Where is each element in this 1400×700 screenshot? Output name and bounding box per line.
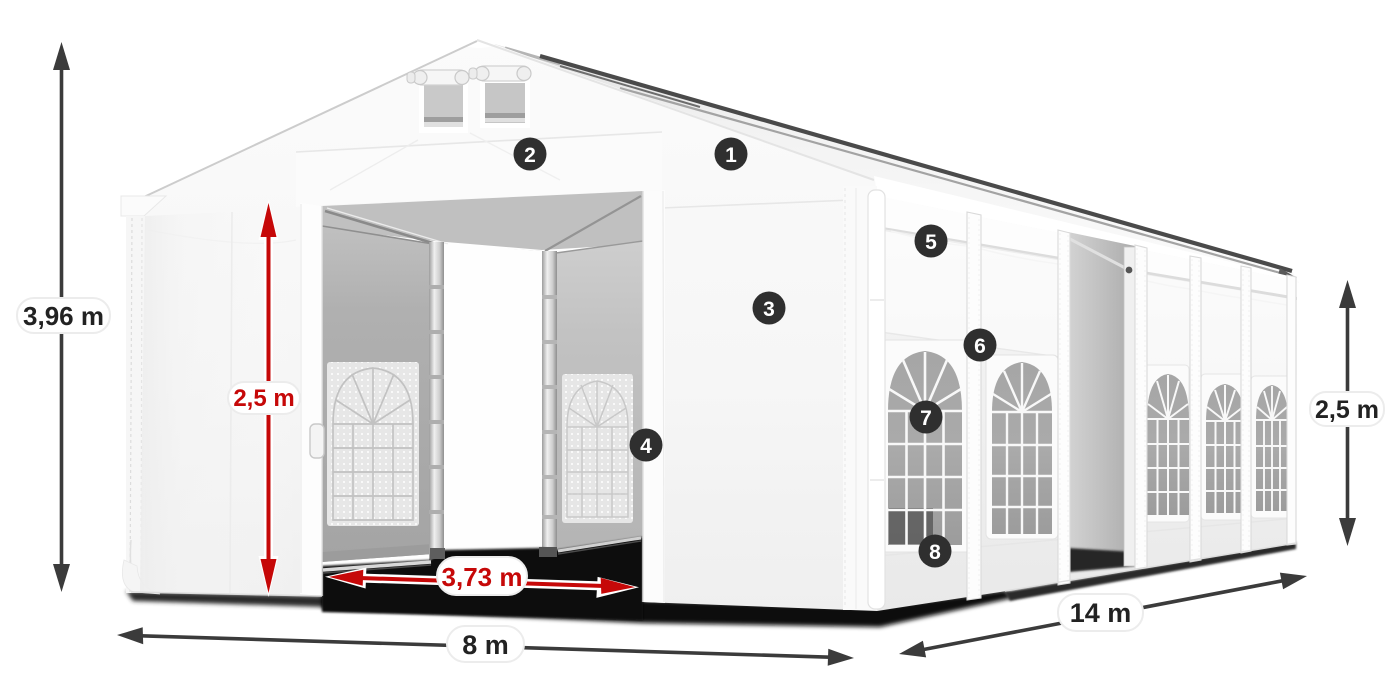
- svg-text:3,73 m: 3,73 m: [442, 562, 523, 592]
- svg-text:7: 7: [920, 407, 932, 430]
- svg-text:2,5 m: 2,5 m: [1315, 396, 1379, 424]
- svg-text:2,5 m: 2,5 m: [233, 385, 294, 412]
- svg-text:8 m: 8 m: [462, 630, 509, 660]
- svg-text:3,96 m: 3,96 m: [23, 301, 104, 331]
- svg-text:6: 6: [974, 335, 986, 358]
- svg-text:8: 8: [929, 541, 941, 564]
- svg-text:2: 2: [524, 144, 536, 167]
- svg-text:3: 3: [763, 298, 775, 321]
- svg-text:14 m: 14 m: [1070, 598, 1132, 628]
- svg-text:1: 1: [725, 144, 737, 167]
- svg-text:4: 4: [640, 435, 652, 458]
- svg-text:5: 5: [925, 231, 937, 254]
